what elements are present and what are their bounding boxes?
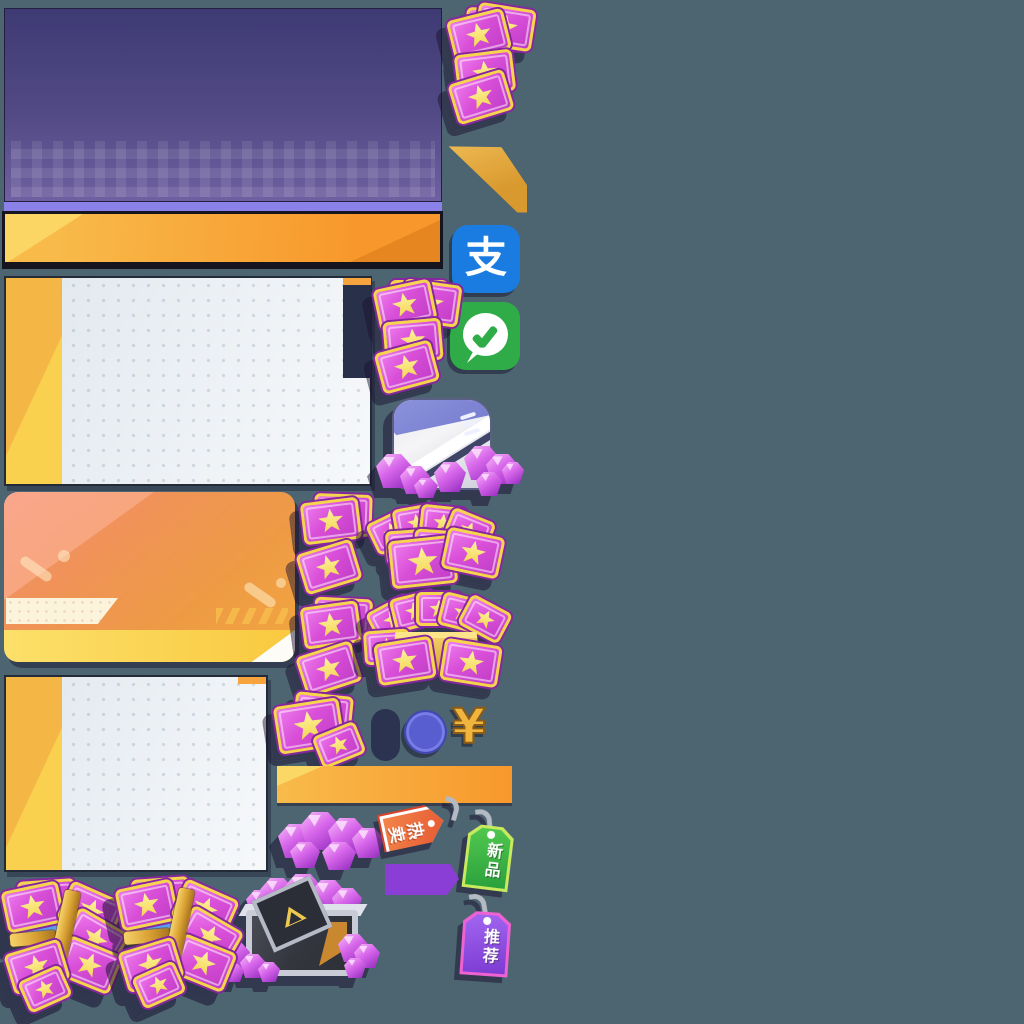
ticket-stack-c: [302, 494, 372, 594]
sprite-atlas-stage: 支: [0, 0, 1024, 1024]
new-item-tag: 新品: [459, 807, 523, 897]
light-panel-bottom: [4, 675, 268, 872]
star-icon: [391, 352, 423, 383]
star-icon: [72, 949, 105, 982]
wechat-pay-icon[interactable]: [450, 302, 520, 370]
navy-corner-block: [343, 278, 371, 378]
star-icon: [406, 545, 440, 578]
star-icon: [317, 507, 346, 535]
star-icon: [458, 538, 489, 568]
triangle-logo-icon: [278, 902, 307, 928]
alipay-icon[interactable]: 支: [452, 225, 520, 293]
gem-pile: [278, 810, 378, 868]
ticket: [295, 538, 363, 595]
star-icon: [18, 892, 49, 922]
star-icon: [390, 647, 420, 676]
tag-label: 新品: [477, 841, 505, 882]
star-icon: [463, 20, 494, 51]
white-corner-triangle: [233, 630, 295, 662]
cream-strip: [6, 598, 118, 624]
star-icon: [326, 732, 352, 757]
yellow-edge-column: [6, 677, 62, 870]
yuan-currency-icon: ¥: [450, 702, 488, 752]
purple-banner-panel: [4, 8, 442, 202]
decor-dot: [276, 578, 286, 588]
star-icon: [186, 947, 219, 980]
ticket-bundle-with-gold-bar: [118, 878, 234, 1010]
star-icon: [313, 551, 345, 583]
decor-pill: [242, 581, 277, 610]
ticket-fan-pile: [368, 504, 500, 590]
ticket: [295, 640, 363, 698]
light-panel-top: [4, 276, 372, 486]
decor-dot: [58, 550, 70, 562]
currency-pouch-with-gems: [380, 396, 524, 500]
indigo-coin-icon: [404, 710, 447, 754]
corner-light-triangle: [277, 766, 323, 786]
tag-body: 新品: [462, 823, 515, 892]
star-icon: [465, 81, 497, 113]
ticket: [373, 636, 437, 687]
decor-hatch-stripes: [216, 608, 288, 624]
gold-corner-ribbon: [447, 138, 527, 214]
purple-parallelogram: [385, 864, 459, 895]
bubble-tail: [467, 352, 480, 363]
star-icon: [472, 606, 499, 632]
corner-light-triangle: [5, 214, 83, 264]
metal-crate-of-gems: [226, 878, 378, 1000]
ticket-stack-e: [302, 596, 372, 696]
ticket: [299, 600, 362, 650]
card-bottom-bar: [4, 630, 295, 662]
ticket-stack-b: [376, 278, 448, 392]
square-grid-pattern: [11, 141, 435, 197]
ticket: [439, 638, 503, 689]
yuan-glyph: ¥: [452, 699, 485, 755]
recommend-tag: 推荐: [455, 892, 519, 984]
star-icon: [316, 611, 345, 639]
corner-light-triangle: [4, 492, 154, 600]
star-icon: [390, 290, 421, 320]
dark-pill-placeholder: [371, 709, 400, 761]
tag-label: 推荐: [475, 927, 502, 967]
orange-header-bar: [2, 211, 443, 269]
tag-body: 热卖: [377, 802, 448, 852]
hot-sale-tag: 热卖: [377, 798, 469, 872]
star-icon: [32, 976, 58, 1001]
ticket-bundle-with-gold-bar: [4, 880, 120, 1016]
banner-divider-strip: [4, 202, 442, 211]
tag-body: 推荐: [459, 910, 511, 977]
yellow-edge-column: [6, 278, 62, 484]
ticket: [300, 497, 363, 546]
star-icon: [146, 972, 172, 997]
ticket-stack-g: [276, 694, 360, 766]
star-icon: [132, 890, 163, 920]
alipay-glyph: 支: [465, 233, 507, 282]
ticket-stack-a: [450, 6, 534, 128]
gold-box-of-tickets: [364, 594, 512, 694]
star-icon: [313, 653, 345, 685]
orange-top-right-strip: [238, 677, 266, 684]
star-icon: [456, 649, 486, 678]
orange-button-bar[interactable]: [277, 766, 512, 803]
orange-gradient-card: [4, 492, 295, 662]
corner-dark-triangle: [350, 220, 440, 262]
